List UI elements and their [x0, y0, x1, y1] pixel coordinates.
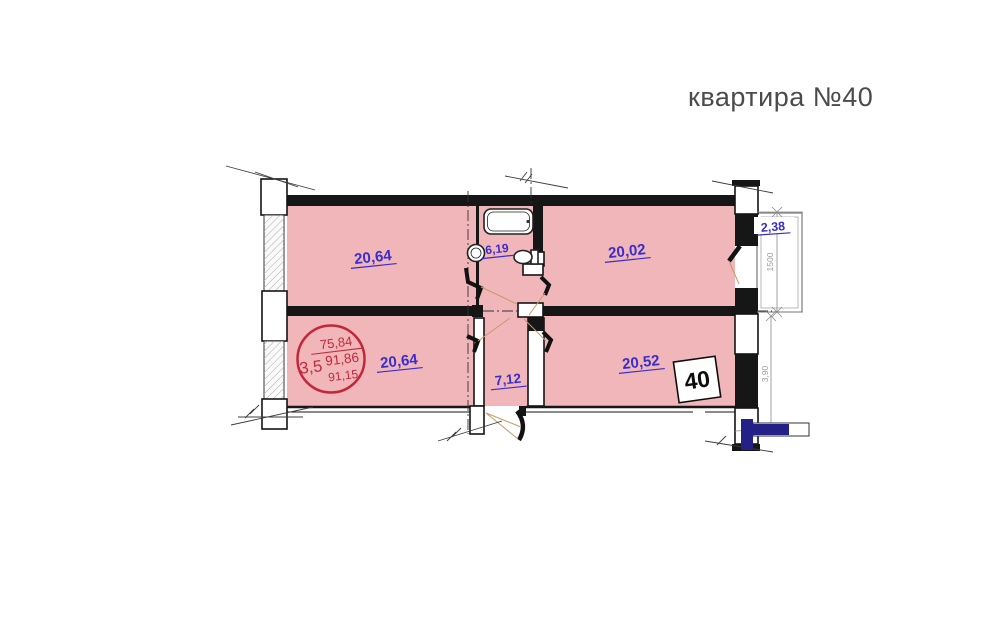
left-wall-windows	[261, 179, 287, 429]
apartment-number: 40	[683, 365, 712, 394]
navy-wall-highlight	[741, 419, 809, 450]
bathroom-area: 6,19	[485, 241, 510, 257]
corridor-area: 7,12	[494, 371, 522, 389]
area-stamp: 75,84 91,86 3,5 91,15	[296, 326, 366, 393]
balcony-area: 2,38	[760, 219, 785, 235]
floorplan-drawing: 1500 3,90 20,64 20,02 20,64 20,52	[0, 0, 1000, 644]
sink-icon	[468, 245, 485, 262]
toilet-icon	[514, 250, 538, 264]
dimension-right-lower: 3,90	[760, 365, 770, 382]
label-balcony: 2,38	[754, 217, 794, 235]
stamp-left-value: 3,5	[298, 357, 323, 378]
floorplan-page: квартира №40	[0, 0, 1000, 644]
bathtub-icon	[484, 209, 533, 234]
window-hatch-upper	[264, 215, 284, 291]
window-hatch-lower	[264, 341, 284, 399]
apartment-number-box: 40	[673, 356, 720, 402]
dimension-balcony-width: 1500	[765, 252, 775, 271]
